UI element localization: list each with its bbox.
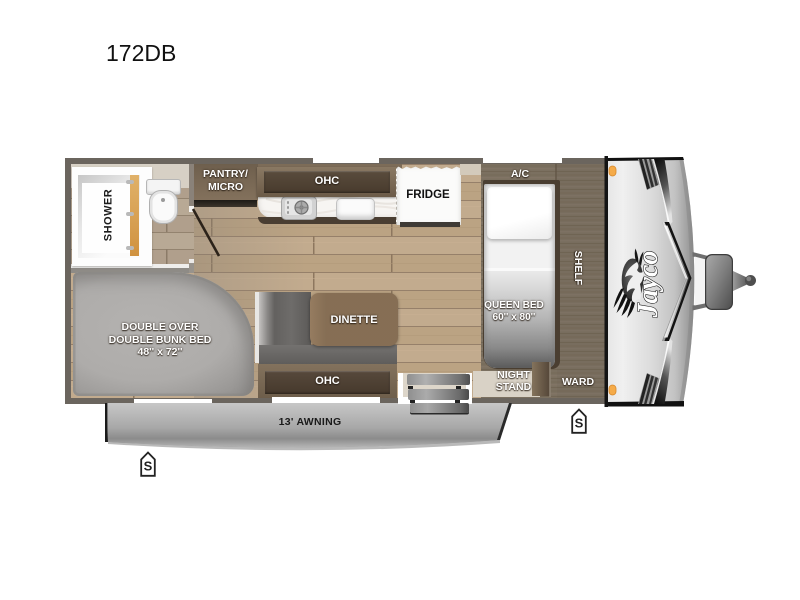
svg-text:S: S [144,459,153,474]
svg-text:Jayco: Jayco [633,251,664,319]
svg-text:S: S [575,416,584,431]
